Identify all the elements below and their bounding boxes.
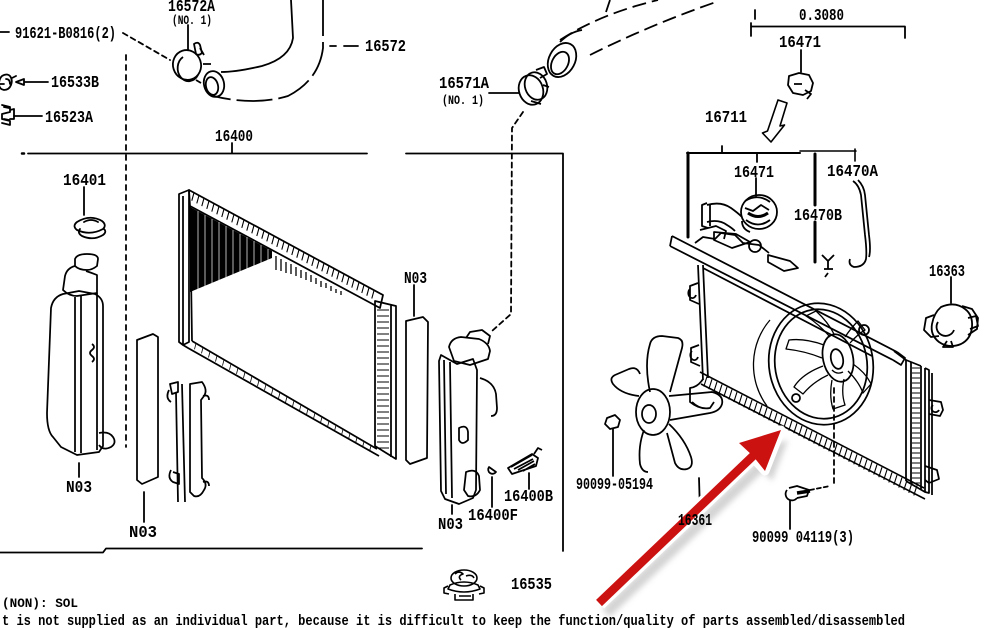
- svg-text:(NON): SOL: (NON): SOL: [2, 596, 78, 611]
- svg-text:16523A: 16523A: [45, 109, 94, 128]
- svg-text:16471: 16471: [779, 34, 821, 53]
- svg-text:N03: N03: [129, 524, 157, 543]
- svg-text:16470B: 16470B: [794, 207, 842, 226]
- svg-text:N03: N03: [438, 516, 463, 535]
- svg-text:N03: N03: [66, 479, 92, 498]
- svg-text:16571A: 16571A: [439, 75, 490, 94]
- svg-text:16400: 16400: [215, 128, 253, 147]
- svg-text:16400B: 16400B: [504, 488, 553, 507]
- svg-text:91621-B0816(2): 91621-B0816(2): [15, 25, 116, 44]
- svg-text:16535: 16535: [511, 576, 552, 595]
- svg-text:0.3080: 0.3080: [799, 7, 844, 26]
- svg-text:16363: 16363: [929, 263, 965, 282]
- svg-text:t is not supplied as an indivi: t is not supplied as an individual part,…: [2, 614, 905, 630]
- svg-text:16401: 16401: [63, 172, 106, 191]
- svg-text:(NO. 1): (NO. 1): [442, 93, 484, 108]
- svg-text:16400F: 16400F: [468, 507, 518, 526]
- svg-text:16471: 16471: [734, 164, 774, 183]
- svg-text:N03: N03: [404, 270, 427, 289]
- svg-text:16711: 16711: [705, 109, 747, 128]
- svg-text:90099 04119(3): 90099 04119(3): [752, 529, 854, 548]
- svg-text:90099-05194: 90099-05194: [576, 476, 653, 495]
- svg-text:16533B: 16533B: [51, 74, 99, 93]
- svg-text:(NO. 1): (NO. 1): [172, 13, 212, 28]
- svg-text:16572: 16572: [365, 38, 406, 57]
- svg-text:16470A: 16470A: [827, 163, 879, 182]
- svg-text:16361: 16361: [678, 512, 712, 531]
